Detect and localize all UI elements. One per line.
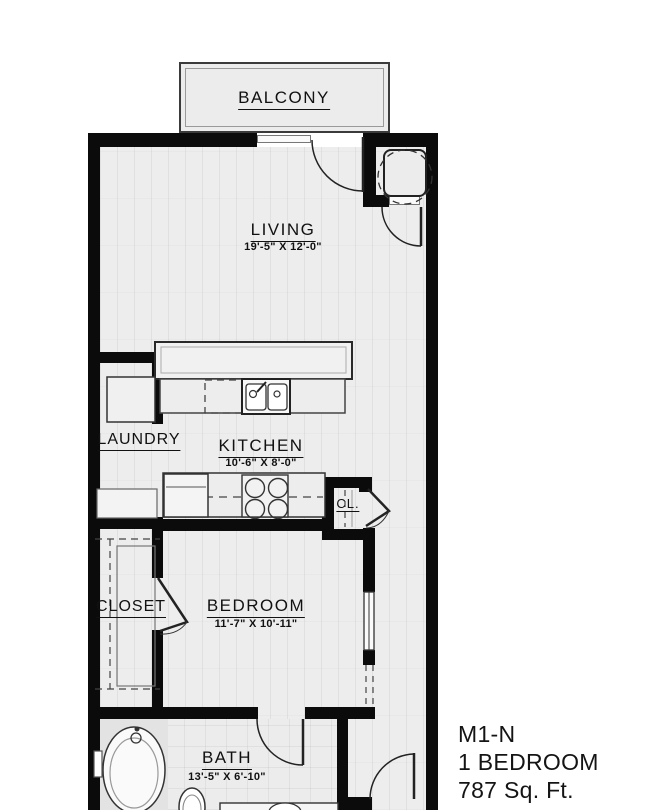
wall	[152, 630, 163, 709]
wall	[363, 195, 389, 207]
bedroom-label: BEDROOM	[207, 596, 305, 618]
bath-dims: 13'-5" X 6'-10"	[188, 771, 266, 783]
wall	[359, 477, 372, 492]
plan-title-block: M1-N 1 BEDROOM 787 Sq. Ft.	[458, 720, 599, 804]
wall	[88, 517, 163, 529]
balcony-label: BALCONY	[238, 88, 330, 110]
wall	[152, 529, 163, 578]
wall	[88, 707, 258, 719]
bedroom-closet-label: CLOSET	[96, 598, 166, 618]
wall	[152, 352, 163, 424]
living-dims: 19'-5" X 12'-0"	[244, 241, 322, 253]
laundry-label: LAUNDRY	[97, 431, 180, 451]
kitchen-label: KITCHEN	[218, 436, 303, 458]
wall	[337, 797, 372, 810]
wall	[322, 529, 365, 540]
wall	[337, 707, 348, 810]
utility-door-threshold	[389, 196, 420, 205]
plan-area: 787 Sq. Ft.	[458, 776, 599, 804]
bath-label: BATH	[202, 748, 252, 770]
wall	[363, 528, 375, 592]
floor-plan: BALCONY LIVING 19'-5" X 12'-0" LAUNDRY K…	[0, 0, 650, 810]
plan-unit-type: 1 BEDROOM	[458, 748, 599, 776]
wall	[163, 519, 323, 531]
wall	[426, 133, 438, 810]
hall-closet-label: CL.	[336, 496, 359, 512]
wall	[88, 133, 257, 147]
kitchen-dims: 10'-6" X 8'-0"	[225, 457, 296, 469]
living-label: LIVING	[251, 220, 316, 242]
wall	[363, 650, 375, 665]
plan-model: M1-N	[458, 720, 599, 748]
balcony-door-threshold	[257, 135, 311, 143]
bedroom-dims: 11'-7" X 10'-11"	[215, 618, 298, 630]
